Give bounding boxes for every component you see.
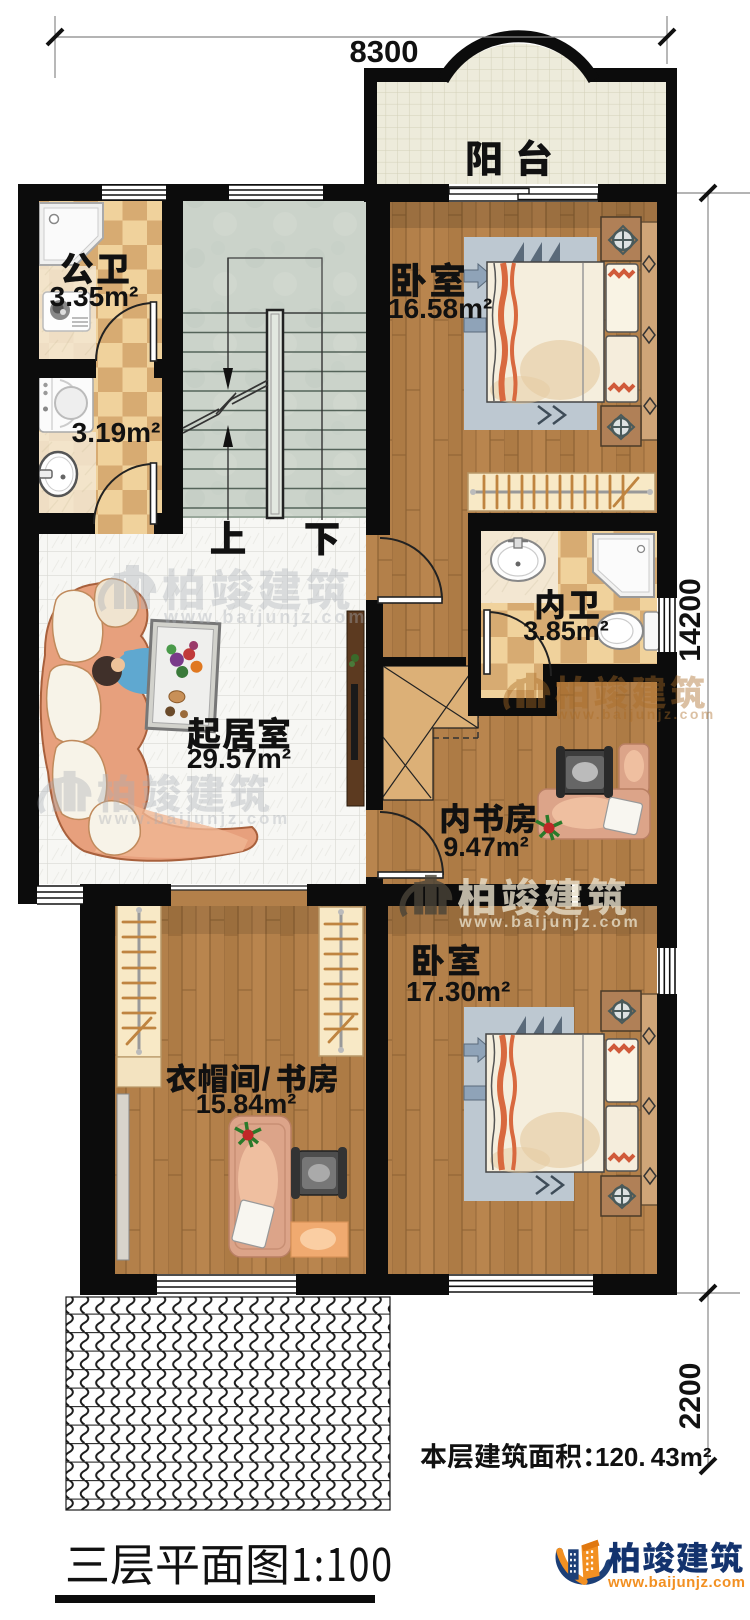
svg-text:www.baijunjz.com: www.baijunjz.com [555,706,715,722]
svg-text:17.30m²: 17.30m² [406,976,510,1007]
svg-text:3.35m²: 3.35m² [50,281,139,312]
svg-text:www.baijunjz.com: www.baijunjz.com [607,1574,745,1591]
svg-text:3.85m²: 3.85m² [523,616,609,646]
svg-text:14200: 14200 [674,578,707,661]
svg-text:15.84m²: 15.84m² [196,1089,297,1119]
svg-text:www.baijunjz.com: www.baijunjz.com [98,809,291,828]
svg-text:www.baijunjz.com: www.baijunjz.com [163,607,367,627]
svg-text:120. 43m²: 120. 43m² [595,1442,712,1472]
svg-text:8300: 8300 [350,34,419,69]
svg-text:www.baijunjz.com: www.baijunjz.com [458,914,640,931]
svg-text:16.58m²: 16.58m² [388,293,492,324]
svg-text:29.57m²: 29.57m² [187,743,291,774]
svg-text:2200: 2200 [674,1363,707,1430]
svg-text:3.19m²: 3.19m² [72,417,161,448]
svg-text:9.47m²: 9.47m² [443,832,529,862]
